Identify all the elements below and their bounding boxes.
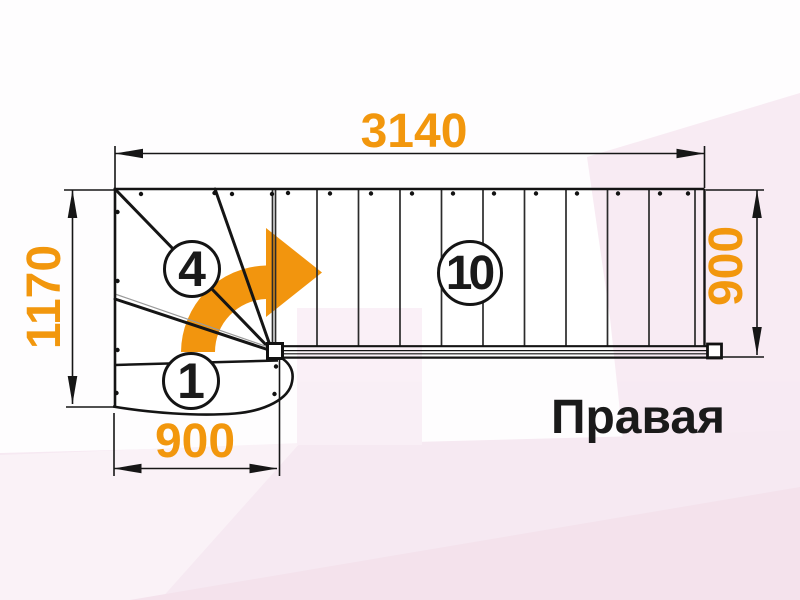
- bg-mid-patch: [297, 308, 422, 445]
- dimension-left: [64, 190, 114, 407]
- stair-plan-drawing: [0, 0, 800, 600]
- dim-arrow-left-icon: [115, 149, 143, 159]
- dim-arrow-up-icon: [68, 190, 78, 218]
- newel-post-left: [268, 344, 283, 359]
- dimension-top-label: 3140: [361, 108, 468, 156]
- dim-arrow-down-icon: [68, 376, 78, 404]
- newel-post-right: [708, 344, 722, 358]
- dimension-bottom-label: 900: [155, 418, 235, 466]
- orientation-label: Правая: [551, 394, 725, 442]
- straight-flight-steps-badge: 10: [437, 240, 503, 306]
- stair-plan-screenshot: 3140 1170 900 900 4 1 10 Правая: [0, 0, 800, 600]
- dimension-right-label: 900: [703, 226, 751, 306]
- dimension-left-label: 1170: [21, 245, 69, 349]
- winder-steps-badge: 4: [163, 240, 221, 298]
- first-step-badge: 1: [162, 352, 220, 410]
